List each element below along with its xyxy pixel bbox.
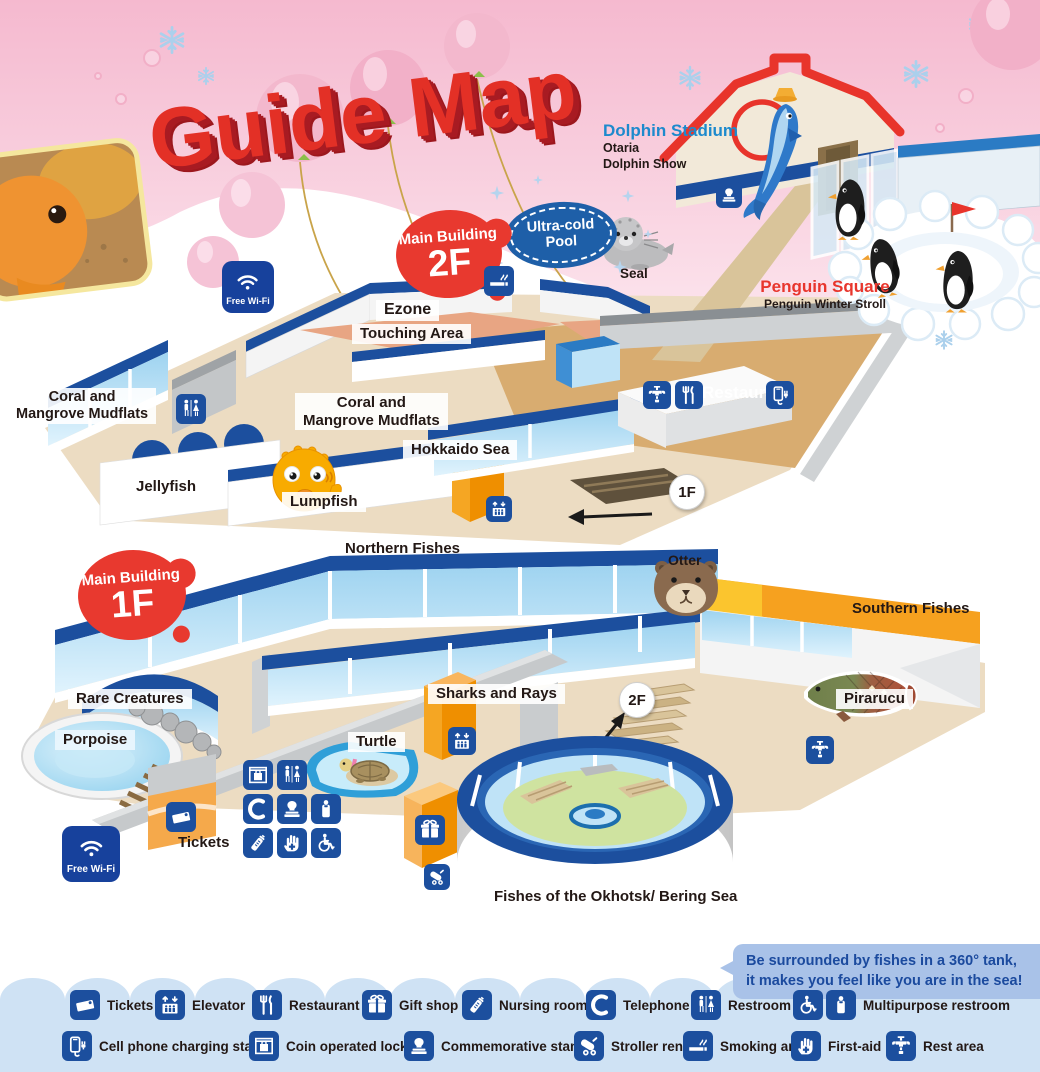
- legend-label: Elevator: [192, 998, 245, 1013]
- first-aid-icon: [791, 1031, 821, 1061]
- seal-label: Seal: [620, 266, 648, 281]
- callout-line1: Be surrounded by fishes in a 360° tank,: [746, 951, 1040, 971]
- label-coral-mudflats-mid: Coral and Mangrove Mudflats: [295, 393, 448, 430]
- wifi-icon: [74, 833, 109, 864]
- nursing-room-icon: [243, 828, 273, 858]
- coral-line1: Coral and: [303, 394, 440, 412]
- legend-restroom: Restroom: [691, 990, 791, 1020]
- smoking-area-icon: [484, 266, 514, 296]
- legend-coin-lockers: Coin operated lockers: [249, 1031, 428, 1061]
- legend-label: Tickets: [107, 998, 153, 1013]
- commemorative-stamp-icon: [404, 1031, 434, 1061]
- free-wifi-badge: Free Wi-Fi: [62, 826, 120, 882]
- elevator-icon: [448, 727, 476, 755]
- commemorative-stamp-icon: [277, 794, 307, 824]
- telephone-icon: [586, 990, 616, 1020]
- legend-label: Telephone: [623, 998, 690, 1013]
- stroller-rental-icon: [574, 1031, 604, 1061]
- legend-nursing-room: Nursing room: [462, 990, 588, 1020]
- legend-label: Rest area: [923, 1039, 984, 1054]
- label-turtle: Turtle: [348, 732, 405, 752]
- legend-label: Multipurpose restroom: [863, 998, 1010, 1013]
- legend-gift-shop: Gift shop: [362, 990, 458, 1020]
- legend-commemorative-stamp: Commemorative stamp: [404, 1031, 590, 1061]
- coral-line2: Mangrove Mudflats: [303, 412, 440, 430]
- wifi-label: Free Wi-Fi: [226, 296, 269, 306]
- multipurpose-restroom-icon: [826, 990, 856, 1020]
- badge-2f-floor: 2F: [427, 243, 473, 281]
- rest-area-icon: [806, 736, 834, 764]
- rest-area-icon: [886, 1031, 916, 1061]
- fish-photo: [0, 137, 156, 306]
- label-northern-fishes: Northern Fishes: [345, 540, 460, 557]
- gift-shop-icon: [415, 815, 445, 845]
- cell-phone-charging-icon: [62, 1031, 92, 1061]
- restaurant-icon: [675, 381, 703, 409]
- elevator-icon: [155, 990, 185, 1020]
- first-aid-icon: [277, 828, 307, 858]
- legend-stroller-rental: Stroller rental: [574, 1031, 699, 1061]
- okhotsk-tank: [457, 736, 733, 864]
- wheelchair-icon: [793, 990, 823, 1020]
- wifi-icon: [232, 268, 263, 297]
- elevator-icon: [486, 496, 512, 522]
- legend-multipurpose-restroom: Multipurpose restroom: [793, 990, 1010, 1020]
- multipurpose-restroom-icon: [311, 794, 341, 824]
- legend-first-aid: First-aid: [791, 1031, 881, 1061]
- legend-label: Commemorative stamp: [441, 1039, 590, 1054]
- commemorative-stamp-icon: [716, 182, 742, 208]
- penguin-stroll-label: Penguin Winter Stroll: [740, 297, 910, 312]
- ultra-cold-line2: Pool: [545, 234, 577, 252]
- coin-lockers-icon: [249, 1031, 279, 1061]
- dolphin-stadium-title: Dolphin Stadium: [603, 121, 738, 141]
- restroom-icon: [277, 760, 307, 790]
- tickets-icon: [166, 802, 196, 832]
- callout-line2: it makes you feel like you are in the se…: [746, 971, 1040, 991]
- restaurant-icon: [252, 990, 282, 1020]
- legend-label: Restroom: [728, 998, 791, 1013]
- free-wifi-badge: Free Wi-Fi: [222, 261, 274, 313]
- label-otter: Otter: [668, 552, 701, 568]
- label-hokkaido-sea: Hokkaido Sea: [403, 440, 517, 460]
- coral-line2: Mangrove Mudflats: [16, 406, 148, 423]
- otter-character: [654, 560, 718, 616]
- badge-1f-floor: 1F: [110, 584, 156, 622]
- label-pirarucu: Pirarucu: [836, 689, 913, 709]
- legend-label: Nursing room: [499, 998, 588, 1013]
- tickets-icon: [70, 990, 100, 1020]
- restroom-icon: [691, 990, 721, 1020]
- otaria-label: Otaria: [603, 141, 738, 157]
- label-rare-creatures: Rare Creatures: [68, 689, 192, 709]
- label-tickets: Tickets: [178, 834, 229, 851]
- label-jellyfish: Jellyfish: [128, 477, 204, 497]
- penguin-square-title: Penguin Square: [740, 277, 910, 297]
- label-lumpfish: Lumpfish: [282, 492, 366, 512]
- stroller-rental-icon: [424, 864, 450, 890]
- legend-label: Restaurant: [289, 998, 360, 1013]
- legend-label: Gift shop: [399, 998, 458, 1013]
- cell-phone-charging-icon: [766, 381, 794, 409]
- dolphin-show-label: Dolphin Show: [603, 157, 738, 173]
- wifi-label: Free Wi-Fi: [67, 864, 115, 875]
- legend-label: First-aid: [828, 1039, 881, 1054]
- dolphin-stadium-label: Dolphin Stadium Otaria Dolphin Show: [603, 121, 738, 172]
- legend-restaurant: Restaurant: [252, 990, 360, 1020]
- legend-telephone: Telephone: [586, 990, 690, 1020]
- label-coral-mudflats-left: Coral and Mangrove Mudflats: [8, 388, 156, 424]
- to-2f-marker: 2F: [619, 682, 655, 718]
- legend-tickets: Tickets: [70, 990, 153, 1020]
- telephone-icon: [243, 794, 273, 824]
- smoking-area-icon: [683, 1031, 713, 1061]
- label-ezone: Ezone: [376, 300, 439, 321]
- restroom-icon: [176, 394, 206, 424]
- nursing-room-icon: [462, 990, 492, 1020]
- legend-rest-area: Rest area: [886, 1031, 984, 1061]
- coral-line1: Coral and: [16, 389, 148, 406]
- to-1f-marker: 1F: [669, 474, 705, 510]
- penguin-square-label: Penguin Square Penguin Winter Stroll: [740, 277, 910, 312]
- coin-lockers-icon: [243, 760, 273, 790]
- label-touching-area: Touching Area: [352, 324, 471, 344]
- label-southern-fishes: Southern Fishes: [852, 600, 970, 617]
- label-porpoise: Porpoise: [55, 730, 135, 750]
- legend-elevator: Elevator: [155, 990, 245, 1020]
- rest-area-icon: [643, 381, 671, 409]
- legend-charging-station: Cell phone charging station: [62, 1031, 277, 1061]
- label-sharks-rays: Sharks and Rays: [428, 684, 565, 704]
- legend-smoking-area: Smoking area: [683, 1031, 809, 1061]
- label-okhotsk-tank: Fishes of the Okhotsk/ Bering Sea: [486, 887, 745, 907]
- wheelchair-icon: [311, 828, 341, 858]
- gift-shop-icon: [362, 990, 392, 1020]
